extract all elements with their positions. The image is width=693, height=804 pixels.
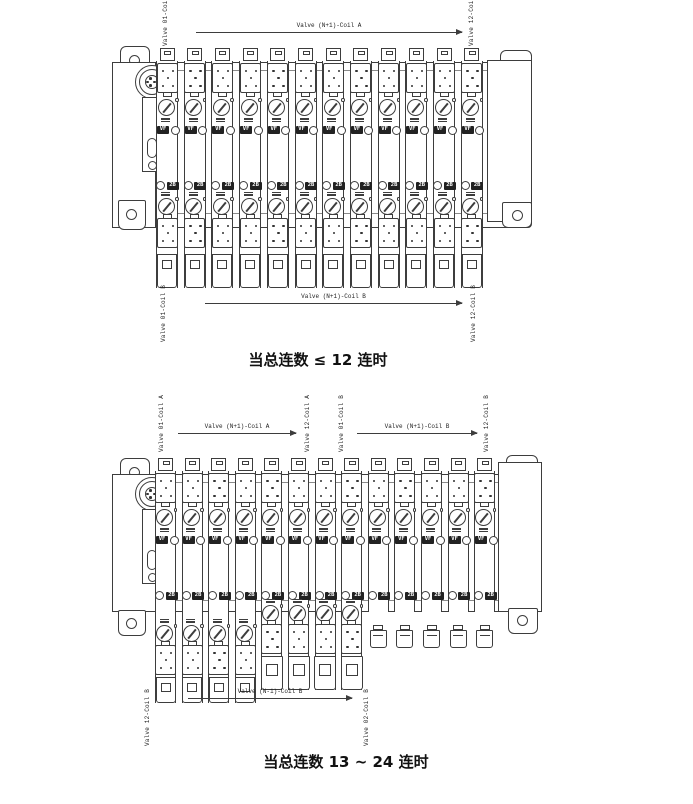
connector-pin-dot <box>436 480 438 482</box>
connector-pin-dot <box>303 495 305 497</box>
connector-notch <box>267 620 276 625</box>
dial-index-dot <box>227 508 231 512</box>
connector-pin-dot <box>463 480 465 482</box>
connector-pin-dot <box>383 495 385 497</box>
clamp-mark <box>375 461 382 465</box>
dial-index-dot <box>307 508 311 512</box>
coil-a-connector <box>235 473 256 503</box>
connector-notch <box>480 502 489 507</box>
connector-notch <box>294 620 303 625</box>
connector-pin-dot <box>479 480 481 482</box>
clamp-mark <box>402 461 409 465</box>
connector-pin-dot <box>271 638 273 640</box>
plug-ridge <box>373 635 383 636</box>
port-circle <box>223 536 232 545</box>
connector-pin-dot <box>399 480 401 482</box>
dial-mark <box>266 528 275 530</box>
dial-index-dot <box>174 508 178 512</box>
connector-pin-dot <box>303 646 305 648</box>
connector-pin-dot <box>213 480 215 482</box>
coil-b-connector <box>261 624 282 654</box>
clamp-mark <box>482 461 489 465</box>
coil-a-connector <box>474 473 495 503</box>
connector-pin-dot <box>298 638 300 640</box>
clamp-mark <box>349 461 356 465</box>
dial-mark <box>213 531 222 533</box>
dial-index-dot <box>333 508 337 512</box>
clamp-tab <box>371 458 386 471</box>
connector-pin-dot <box>378 487 380 489</box>
connector-pin-dot <box>356 646 358 648</box>
plug-window <box>319 664 331 676</box>
connector-pin-dot <box>320 646 322 648</box>
connector-pin-dot <box>271 487 273 489</box>
connector-pin-dot <box>276 631 278 633</box>
connector-pin-dot <box>218 659 220 661</box>
connector-pin-dot <box>170 667 172 669</box>
connector-notch <box>161 641 170 646</box>
connector-pin-dot <box>266 480 268 482</box>
dial-mark <box>213 621 222 623</box>
connector-pin-dot <box>213 495 215 497</box>
connector-notch <box>214 502 223 507</box>
vf-badge: VF <box>316 536 328 544</box>
connector-pin-dot <box>276 646 278 648</box>
coil-a-connector <box>208 473 229 503</box>
dial-mark <box>266 531 275 533</box>
connector-pin-dot <box>170 495 172 497</box>
port-circle <box>436 536 445 545</box>
connector-pin-dot <box>250 652 252 654</box>
connector-pin-dot <box>266 646 268 648</box>
connector-pin-dot <box>160 652 162 654</box>
dial-mark <box>160 619 169 621</box>
dial-mark <box>319 528 328 530</box>
m12-pin-dot <box>149 496 152 499</box>
clamp-mark <box>163 461 170 465</box>
vf-badge: VF <box>262 536 274 544</box>
station-badge: 2B <box>458 592 470 600</box>
connector-pin-dot <box>409 480 411 482</box>
clamp-mark <box>269 461 276 465</box>
vf-badge: VF <box>422 536 434 544</box>
connector-pin-dot <box>165 487 167 489</box>
vf-badge: VF <box>183 536 195 544</box>
connector-pin-dot <box>383 480 385 482</box>
blank-plug <box>370 630 387 648</box>
dial-mark <box>239 528 248 530</box>
coil-b-arrow-label: Valve (N-1)-Coil B <box>188 687 352 696</box>
connector-notch <box>321 502 330 507</box>
connector-pin-dot <box>250 495 252 497</box>
dial-mark <box>293 528 302 530</box>
plug-window <box>161 683 171 692</box>
blank-plug <box>396 630 413 648</box>
clamp-tab <box>318 458 333 471</box>
plug-ridge <box>427 635 437 636</box>
dial-mark <box>426 531 435 533</box>
port-circle <box>421 591 430 600</box>
connector-pin-dot <box>346 495 348 497</box>
plug-ridge <box>480 635 490 636</box>
mounting-hole <box>126 618 137 629</box>
port-circle <box>249 536 258 545</box>
dial-index-dot <box>253 508 257 512</box>
coil-a-connector <box>315 473 336 503</box>
connector-pin-dot <box>320 480 322 482</box>
port-circle <box>170 536 179 545</box>
coil-a-connector <box>448 473 469 503</box>
clamp-tab <box>291 458 306 471</box>
port-circle <box>196 536 205 545</box>
port-circle <box>235 591 244 600</box>
connector-pin-dot <box>250 480 252 482</box>
connector-pin-dot <box>436 495 438 497</box>
clamp-tab <box>238 458 253 471</box>
connector-pin-dot <box>458 487 460 489</box>
dial-mark <box>186 619 195 621</box>
dial-mark <box>346 531 355 533</box>
connector-pin-dot <box>453 480 455 482</box>
coil-b-connector <box>235 645 256 675</box>
station-badge: 2B <box>166 592 178 600</box>
bottom-plug <box>341 656 363 690</box>
valve-02-coil-b-label: Valve 02-Coil B <box>363 689 370 746</box>
connector-pin-dot <box>187 652 189 654</box>
dial-mark <box>346 601 355 603</box>
station-badge: 2B <box>245 592 257 600</box>
connector-pin-dot <box>373 495 375 497</box>
station-badge: 2B <box>432 592 444 600</box>
vf-badge: VF <box>342 536 354 544</box>
dial-mark <box>346 528 355 530</box>
blank-plug <box>450 630 467 648</box>
port-circle <box>276 536 285 545</box>
dial-index-dot <box>200 508 204 512</box>
dial-mark <box>479 531 488 533</box>
dial-mark <box>239 619 248 621</box>
connector-pin-dot <box>240 480 242 482</box>
connector-pin-dot <box>346 631 348 633</box>
arrow-line <box>188 698 352 699</box>
dial-mark <box>266 599 275 601</box>
connector-pin-dot <box>245 487 247 489</box>
blank-plug <box>476 630 493 648</box>
clamp-mark <box>189 461 196 465</box>
connector-pin-dot <box>356 631 358 633</box>
dial-index-dot <box>280 508 284 512</box>
connector-pin-dot <box>489 480 491 482</box>
connector-notch <box>374 502 383 507</box>
connector-pin-dot <box>223 495 225 497</box>
clamp-tab <box>424 458 439 471</box>
dial-mark <box>213 528 222 530</box>
coil-b-reverse-arrow: Valve (N-1)-Coil B <box>188 687 352 699</box>
connector-notch <box>427 502 436 507</box>
vf-badge: VF <box>449 536 461 544</box>
connector-pin-dot <box>170 652 172 654</box>
connector-pin-dot <box>187 495 189 497</box>
port-circle <box>448 591 457 600</box>
connector-pin-dot <box>330 495 332 497</box>
dial-mark <box>239 531 248 533</box>
connector-pin-dot <box>160 495 162 497</box>
connector-pin-dot <box>245 659 247 661</box>
dial-index-dot <box>280 604 284 608</box>
connector-pin-dot <box>223 652 225 654</box>
connector-pin-dot <box>409 495 411 497</box>
connector-notch <box>188 502 197 507</box>
valve-12-coil-b-bottom-label: Valve 12-Coil B <box>144 689 151 746</box>
port-circle <box>489 536 498 545</box>
connector-pin-dot <box>293 646 295 648</box>
dial-mark <box>293 531 302 533</box>
connector-pin-dot <box>197 667 199 669</box>
valve-manifold-wiring-figure: Valve 01-Coil A Valve (N+1)-Coil A Valve… <box>0 0 693 804</box>
vf-badge: VF <box>395 536 407 544</box>
connector-pin-dot <box>197 495 199 497</box>
coil-a-connector <box>261 473 282 503</box>
connector-notch <box>161 502 170 507</box>
connector-pin-dot <box>293 480 295 482</box>
station-badge: 2B <box>485 592 497 600</box>
dial-mark <box>293 601 302 603</box>
connector-pin-dot <box>298 487 300 489</box>
port-circle <box>356 536 365 545</box>
connector-notch <box>214 641 223 646</box>
dial-mark <box>372 528 381 530</box>
vf-badge: VF <box>209 536 221 544</box>
connector-notch <box>347 620 356 625</box>
station-badge: 2B <box>219 592 231 600</box>
mounting-hole <box>517 615 528 626</box>
connector-pin-dot <box>293 631 295 633</box>
dial-mark <box>346 599 355 601</box>
coil-b-connector <box>208 645 229 675</box>
dial-mark <box>186 531 195 533</box>
connector-pin-dot <box>346 480 348 482</box>
valve-manifold-drawing-24: VF2BVF2BVF2BVF2BVF2BVF2BVF2BVF2BVF2BVF2B… <box>0 0 693 804</box>
clamp-tab <box>477 458 492 471</box>
connector-pin-dot <box>223 480 225 482</box>
dial-index-dot <box>466 508 470 512</box>
coil-b-connector <box>288 624 309 654</box>
clamp-mark <box>296 461 303 465</box>
clamp-mark <box>429 461 436 465</box>
connector-pin-dot <box>453 495 455 497</box>
blank-plug <box>423 630 440 648</box>
plug-window <box>293 664 305 676</box>
connector-pin-dot <box>266 495 268 497</box>
connector-notch <box>347 502 356 507</box>
connector-pin-dot <box>431 487 433 489</box>
plug-ridge <box>453 635 463 636</box>
clamp-mark <box>242 461 249 465</box>
coil-a-connector <box>288 473 309 503</box>
connector-pin-dot <box>356 480 358 482</box>
connector-pin-dot <box>330 631 332 633</box>
port-circle <box>182 591 191 600</box>
connector-pin-dot <box>250 667 252 669</box>
connector-pin-dot <box>197 652 199 654</box>
bottom-plug <box>288 656 310 690</box>
connector-pin-dot <box>187 480 189 482</box>
connector-pin-dot <box>170 480 172 482</box>
connector-pin-dot <box>373 480 375 482</box>
dial-mark <box>452 528 461 530</box>
bottom-plug <box>314 656 336 690</box>
clamp-tab <box>211 458 226 471</box>
clamp-mark <box>455 461 462 465</box>
coil-a-connector <box>182 473 203 503</box>
plug-ridge <box>400 635 410 636</box>
connector-pin-dot <box>330 480 332 482</box>
coil-a-connector <box>341 473 362 503</box>
connector-pin-dot <box>213 652 215 654</box>
connector-pin-dot <box>320 495 322 497</box>
vf-badge: VF <box>369 536 381 544</box>
vf-badge: VF <box>475 536 487 544</box>
connector-notch <box>241 641 250 646</box>
vf-badge: VF <box>156 536 168 544</box>
bottom-plug <box>261 656 283 690</box>
connector-notch <box>188 641 197 646</box>
connector-pin-dot <box>479 495 481 497</box>
dial-index-dot <box>413 508 417 512</box>
connector-pin-dot <box>223 667 225 669</box>
connector-pin-dot <box>303 631 305 633</box>
connector-pin-dot <box>404 487 406 489</box>
connector-pin-dot <box>240 667 242 669</box>
station-badge: 2B <box>378 592 390 600</box>
connector-pin-dot <box>240 495 242 497</box>
dial-mark <box>239 621 248 623</box>
port-circle <box>329 536 338 545</box>
coil-a-connector <box>394 473 415 503</box>
dial-index-dot <box>174 624 178 628</box>
dial-index-dot <box>307 604 311 608</box>
dial-index-dot <box>386 508 390 512</box>
port-circle <box>409 536 418 545</box>
clamp-mark <box>322 461 329 465</box>
dial-index-dot <box>360 604 364 608</box>
dial-mark <box>399 528 408 530</box>
connector-notch <box>294 502 303 507</box>
arrowhead-icon <box>346 695 353 701</box>
connector-pin-dot <box>293 495 295 497</box>
clamp-tab <box>397 458 412 471</box>
dial-mark <box>266 601 275 603</box>
m12-pin-dot <box>146 493 149 496</box>
coil-b-connector <box>155 645 176 675</box>
clamp-tab <box>451 458 466 471</box>
dial-index-dot <box>360 508 364 512</box>
connector-notch <box>267 502 276 507</box>
connector-pin-dot <box>276 495 278 497</box>
dial-mark <box>426 528 435 530</box>
connector-pin-dot <box>351 638 353 640</box>
end-plate-right <box>498 462 542 612</box>
connector-notch <box>454 502 463 507</box>
connector-pin-dot <box>160 480 162 482</box>
connector-pin-dot <box>463 495 465 497</box>
port-circle <box>462 536 471 545</box>
connector-notch <box>400 502 409 507</box>
dial-mark <box>319 531 328 533</box>
dial-index-dot <box>227 624 231 628</box>
connector-pin-dot <box>346 646 348 648</box>
vf-badge: VF <box>289 536 301 544</box>
connector-pin-dot <box>325 638 327 640</box>
dial-index-dot <box>440 508 444 512</box>
dial-mark <box>399 531 408 533</box>
station-badge: 2B <box>405 592 417 600</box>
port-circle <box>368 591 377 600</box>
dial-index-dot <box>253 624 257 628</box>
port-circle <box>155 591 164 600</box>
connector-pin-dot <box>484 487 486 489</box>
coil-b-connector <box>182 645 203 675</box>
station-badge: 2B <box>192 592 204 600</box>
dial-mark <box>160 621 169 623</box>
connector-pin-dot <box>399 495 401 497</box>
caption-13-to-24: 当总连数 13 ~ 24 连时 <box>196 751 496 772</box>
connector-pin-dot <box>351 487 353 489</box>
dial-mark <box>372 531 381 533</box>
dial-mark <box>186 528 195 530</box>
dial-mark <box>452 531 461 533</box>
clamp-tab <box>344 458 359 471</box>
connector-pin-dot <box>266 631 268 633</box>
m12-pin-dot <box>149 489 152 492</box>
clamp-tab <box>185 458 200 471</box>
clamp-mark <box>216 461 223 465</box>
dial-mark <box>479 528 488 530</box>
connector-pin-dot <box>330 646 332 648</box>
dial-mark <box>186 621 195 623</box>
connector-pin-dot <box>426 480 428 482</box>
connector-pin-dot <box>192 487 194 489</box>
dial-mark <box>160 531 169 533</box>
plug-window <box>266 664 278 676</box>
coil-b-connector <box>341 624 362 654</box>
dial-index-dot <box>333 604 337 608</box>
dial-index-dot <box>493 508 497 512</box>
connector-pin-dot <box>213 667 215 669</box>
dial-mark <box>319 601 328 603</box>
clamp-tab <box>158 458 173 471</box>
connector-pin-dot <box>197 480 199 482</box>
connector-notch <box>321 620 330 625</box>
plug-window <box>346 664 358 676</box>
connector-pin-dot <box>240 652 242 654</box>
dial-mark <box>213 619 222 621</box>
connector-notch <box>241 502 250 507</box>
clamp-tab <box>264 458 279 471</box>
connector-pin-dot <box>325 487 327 489</box>
dial-mark <box>293 599 302 601</box>
coil-b-connector <box>315 624 336 654</box>
connector-pin-dot <box>303 480 305 482</box>
coil-a-connector <box>368 473 389 503</box>
diagram-stations-13-to-24: Valve 01-Coil A Valve (N+1)-Coil A Valve… <box>0 0 693 804</box>
coil-a-connector <box>421 473 442 503</box>
connector-pin-dot <box>192 659 194 661</box>
connector-pin-dot <box>426 495 428 497</box>
dial-mark <box>160 528 169 530</box>
coil-a-connector <box>155 473 176 503</box>
port-circle <box>382 536 391 545</box>
